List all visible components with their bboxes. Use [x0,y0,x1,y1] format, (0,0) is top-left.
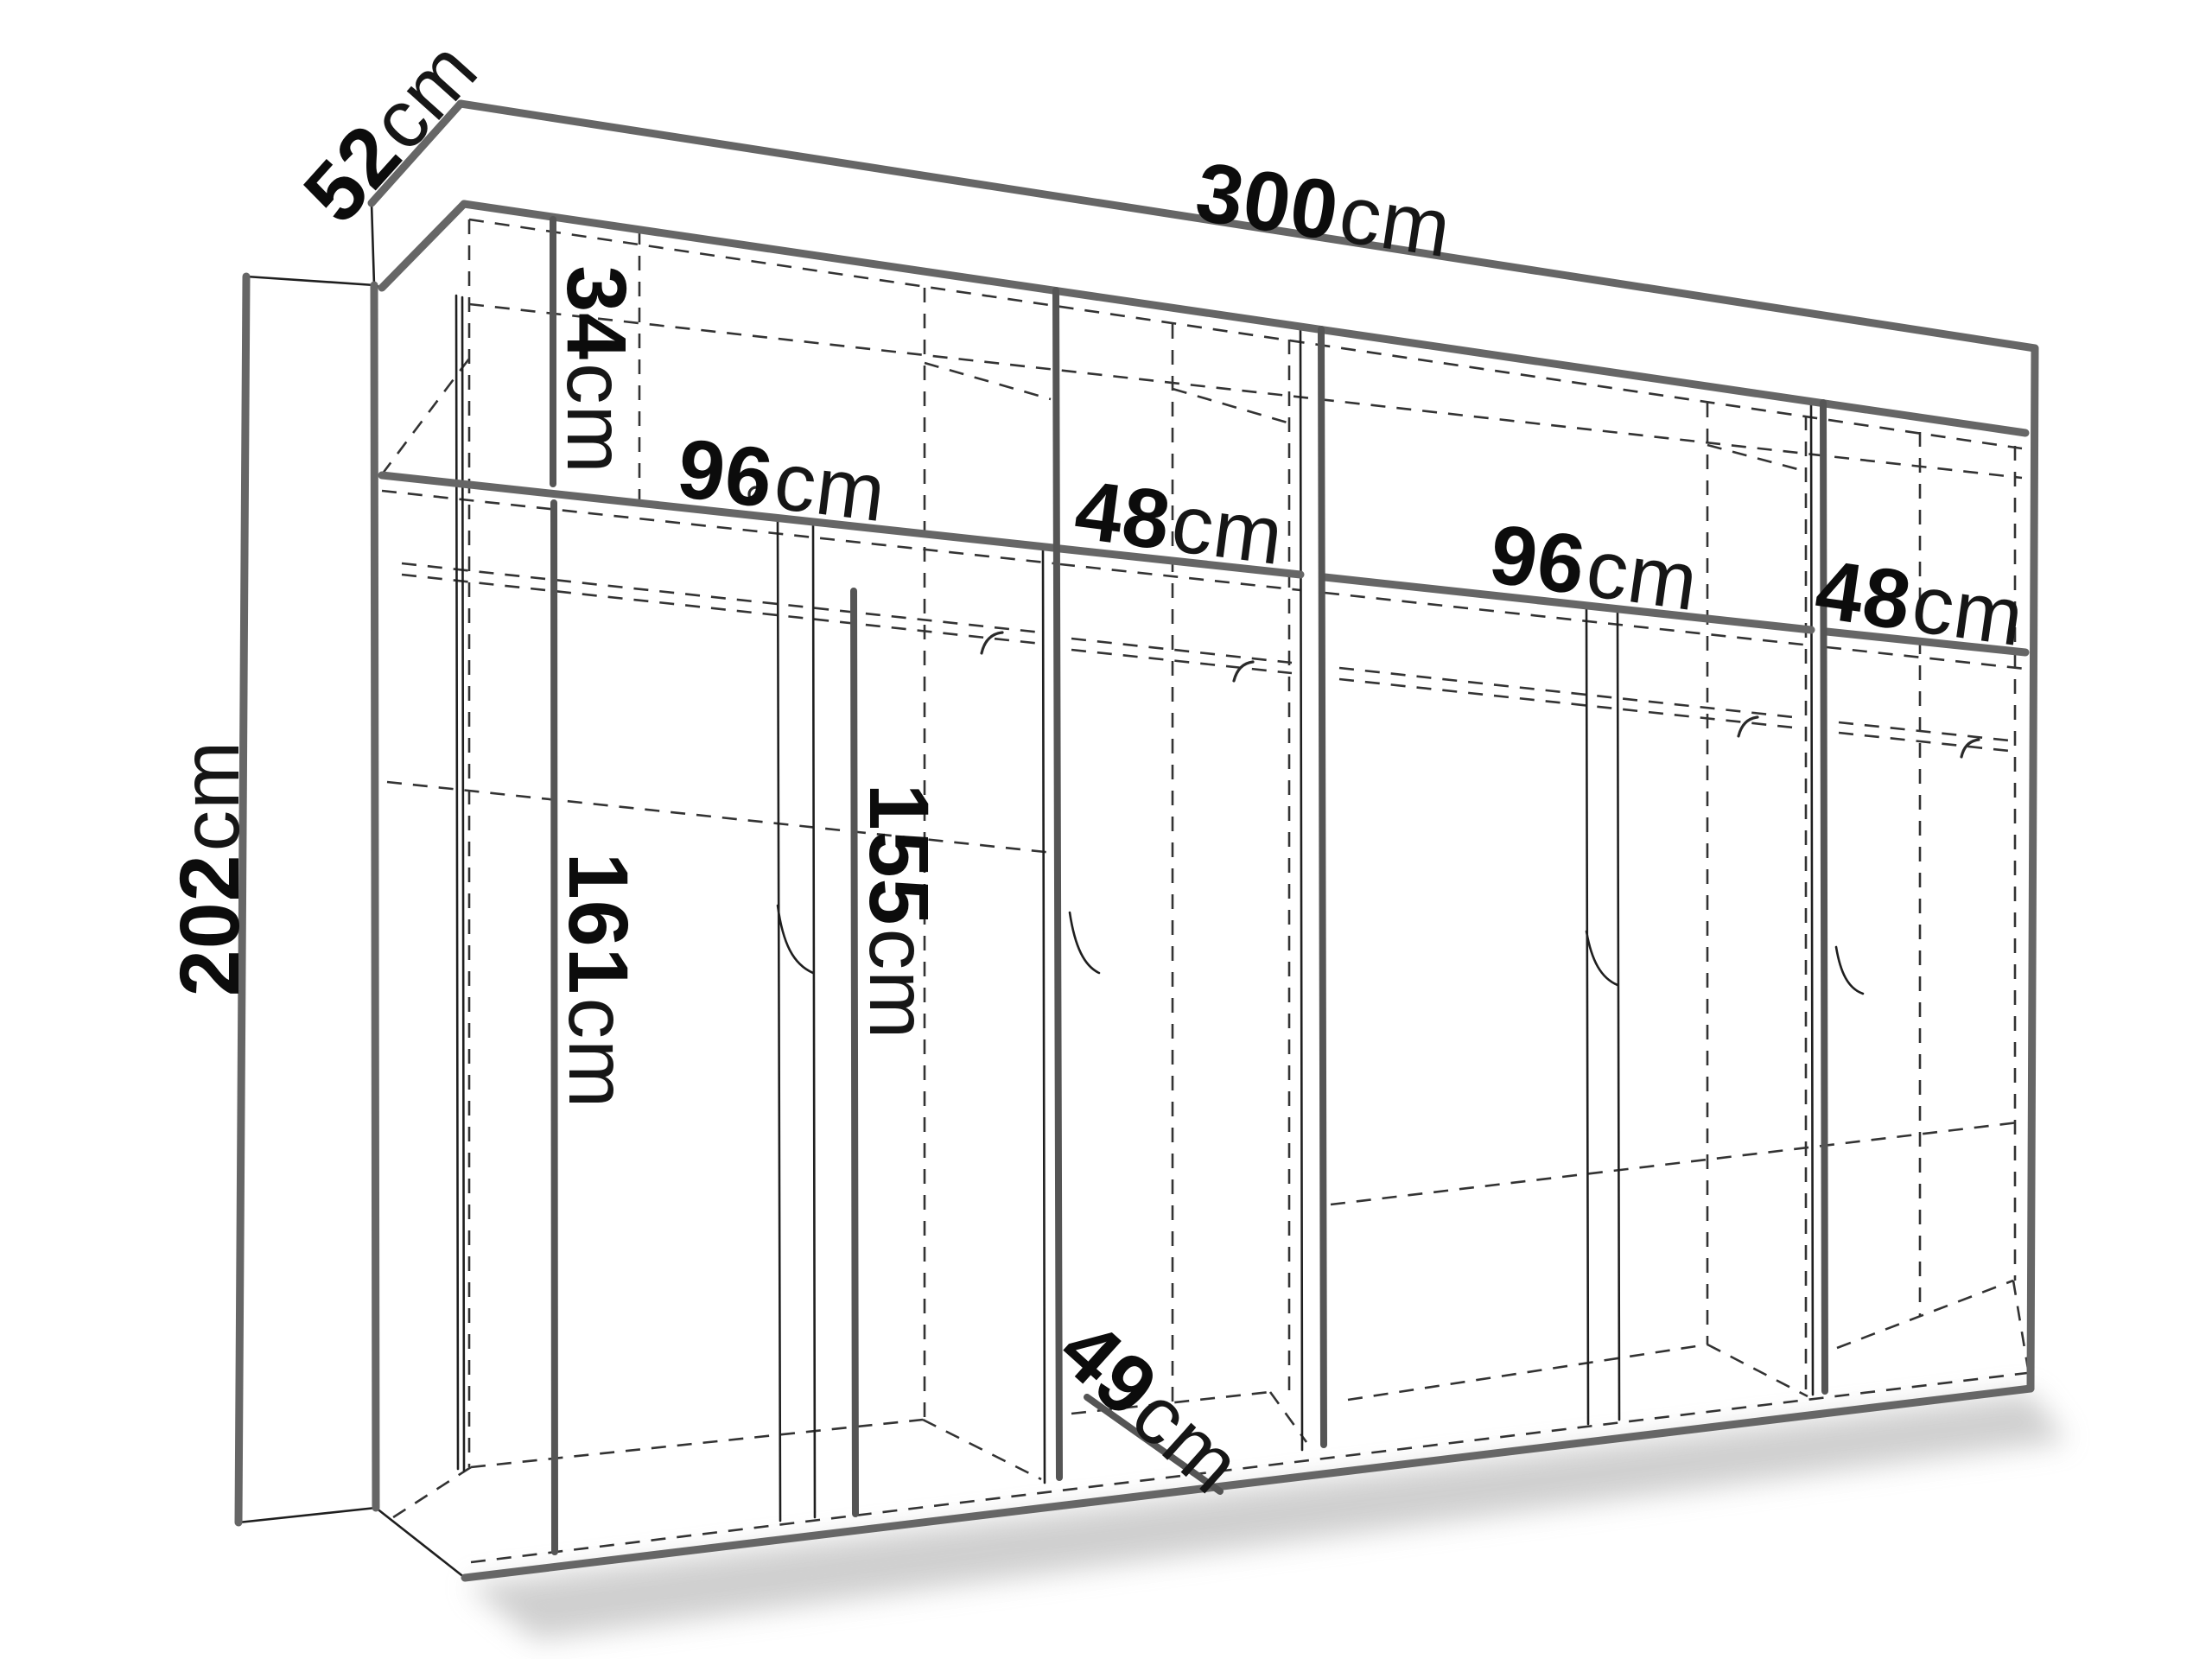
rail-hook-icons [749,487,1979,757]
wardrobe-dimension-diagram: 52cm 300cm 202cm 34cm 96cm 48cm 96cm 48c… [0,0,2212,1659]
dim-label-top-shelf-34cm: 34cm [554,265,639,474]
dim-line-155cm [854,591,855,1514]
dim-label-height-202cm: 202cm [168,741,252,996]
dividers-and-dimension-lines [553,219,1825,1552]
dim-label-door-161cm: 161cm [556,853,640,1109]
floor-shadow [467,1393,2067,1640]
dim-label-hanging-155cm: 155cm [856,784,941,1039]
